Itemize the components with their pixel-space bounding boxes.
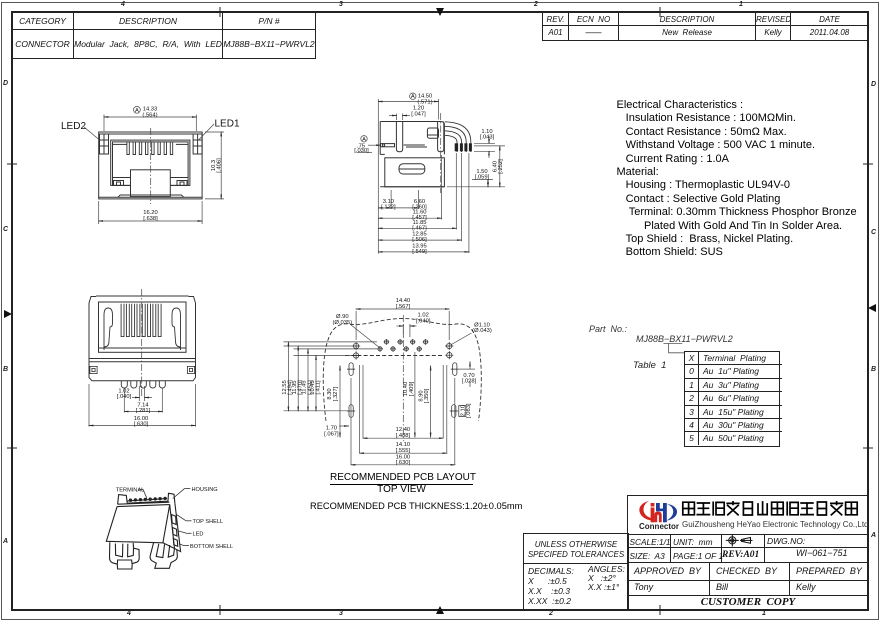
svg-text:[.122]: [.122] [381,205,396,211]
svg-text:[.630]: [.630] [396,460,411,466]
svg-text:LED1: LED1 [215,119,240,130]
svg-text:[.281]: [.281] [136,408,151,414]
svg-text:BOTTOM SHELL: BOTTOM SHELL [190,544,233,550]
svg-text:(Ø.043): (Ø.043) [472,328,492,334]
svg-text:LED: LED [193,531,204,537]
svg-text:A: A [362,137,366,143]
svg-text:[.083]: [.083] [466,403,472,418]
svg-text:(Ø.035): (Ø.035) [332,320,352,326]
svg-text:[.406]: [.406] [217,158,223,173]
svg-text:(.564): (.564) [142,112,157,118]
svg-text:[.567]: [.567] [396,304,411,310]
svg-text:[.467]: [.467] [412,225,427,231]
svg-text:HOUSING: HOUSING [192,487,218,493]
svg-text:A: A [135,108,139,114]
svg-text:[.411]: [.411] [316,380,322,394]
svg-text:[.040]: [.040] [416,318,431,324]
svg-text:[.630]: [.630] [134,422,149,428]
svg-text:TOP SHELL: TOP SHELL [193,519,224,525]
svg-text:[.555]: [.555] [396,448,411,454]
svg-text:[.549]: [.549] [412,249,427,255]
svg-text:[.043]: [.043] [480,135,495,141]
svg-text:LED2: LED2 [61,121,86,132]
svg-text:[.638]: [.638] [143,216,158,222]
svg-text:[.488]: [.488] [396,433,411,439]
svg-text:[.040]: [.040] [117,394,132,400]
svg-text:[.506]: [.506] [412,237,427,243]
svg-text:[.030]: [.030] [354,148,369,154]
svg-text:(.571): (.571) [417,99,432,105]
svg-text:[.047]: [.047] [411,111,426,117]
svg-text:[.252]: [.252] [498,159,504,174]
svg-text:[.350]: [.350] [424,388,430,403]
svg-text:[.059]: [.059] [475,175,490,181]
svg-text:[.327]: [.327] [333,386,339,401]
svg-text:[.067]: [.067] [324,431,339,437]
svg-text:[.409]: [.409] [409,381,415,396]
svg-text:[.028]: [.028] [462,379,477,385]
svg-text:TERMINAL: TERMINAL [116,487,144,493]
